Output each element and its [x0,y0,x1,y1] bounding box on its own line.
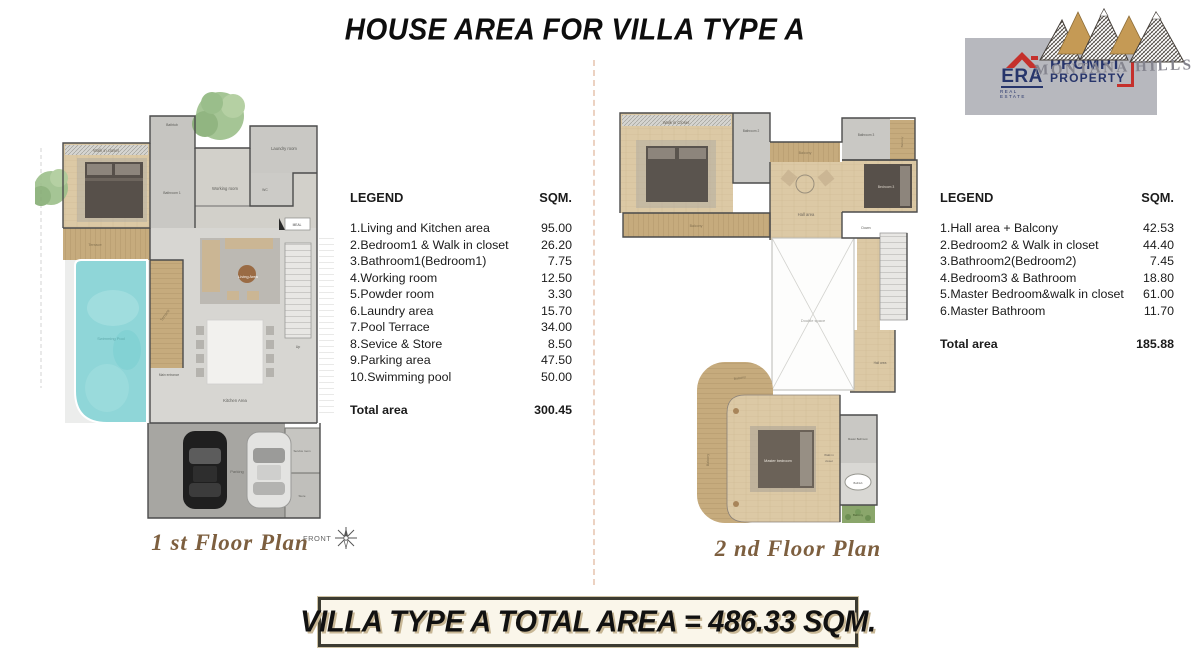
plan1-label-up: Up [296,345,301,349]
plan2-label-walk-in-closet: Walk in Closet [663,120,690,125]
plan1-swimming-pool [75,260,147,423]
legend-row: 7.Pool Terrace34.00 [350,319,572,336]
montana-hills-logo: MONTANA HILLS [1032,4,1200,99]
plan1-dining-table [196,320,274,384]
legend-row: 4.Working room12.50 [350,270,572,287]
plan1-label-swimming-pool: Swimming Pool [97,336,125,341]
second-floor-legend: LEGEND SQM. 1.Hall area + Balcony42.53 2… [940,190,1174,351]
first-floor-legend: LEGEND SQM. 1.Living and Kitchen area95.… [350,190,572,417]
second-floor-plan: Walk in Closet Bathroom 2 Balcony Bathro… [608,98,928,528]
plan1-label-main-entrance: Main entrance [159,373,179,377]
plan2-double-space [772,238,854,390]
legend-row: 3.Bathroom1(Bedroom1)7.75 [350,253,572,270]
plan1-silver-car [247,432,291,508]
legend-row: 5.Powder room3.30 [350,286,572,303]
plan1-living-furniture [200,238,280,304]
legend-row: 8.Sevice & Store8.50 [350,336,572,353]
plan2-label-balcony-top: Balcony [799,151,812,155]
legend1-total-row: Total area 300.45 [350,403,572,417]
plan2-label-balcony-mid: Balcony [690,224,703,228]
plan2-label-walk-in-2: closet [825,459,833,463]
front-indicator: FRONT [303,526,358,550]
plan2-hall-area [770,162,842,240]
plan1-label-living-area: Living Area [238,274,259,279]
plan1-label-store: Store [299,494,306,498]
plan2-label-hall-area2: Hall area [874,361,887,365]
plan1-tree-top [192,92,245,140]
plan2-bathroom3-room [842,118,890,160]
plan2-label-bedroom3: Bedroom 3 [878,185,895,189]
legend-row: 1.Living and Kitchen area95.00 [350,220,572,237]
legend1-header: LEGEND [350,190,403,205]
compass-icon [334,526,358,550]
plan2-label-bathtub: Bathtub [854,481,863,485]
plan1-label-working-room: Working room [212,186,238,191]
trellis-strip [319,238,334,418]
plan1-label-terrace-top: Terrace [88,242,102,247]
plan1-label-kitchen-area: Kitchen Area [223,398,247,403]
legend-row: 3.Bathroom2(Bedroom2)7.45 [940,253,1174,270]
first-floor-plan: Walk in closet Bathtub Bathroom 1 Workin… [35,88,335,548]
legend-row: 6.Laundry area15.70 [350,303,572,320]
plan1-label-service-room: Service room [293,449,311,453]
plan1-label-walk-in-closet: Walk in closet [93,148,120,153]
plan1-wc-room [250,173,293,206]
legend-row: 1.Hall area + Balcony42.53 [940,220,1174,237]
plan2-label-master-bathroom: Master Bathroom [848,437,868,441]
plan2-bathroom2-room [733,113,770,183]
plan2-bed2 [636,140,716,208]
center-divider [593,60,595,585]
plan2-label-walk-in-1: Walk in [824,453,834,457]
plan2-label-down: Down [861,226,870,230]
plan1-label-bathroom1: Bathroom 1 [163,191,181,195]
legend-row: 2.Bedroom2 & Walk in closet44.40 [940,237,1174,254]
mountains-icon [1040,9,1184,62]
plan1-label-bathtub: Bathtub [166,123,178,127]
plan2-label-balcony-right: Balcony [900,136,904,147]
plan2-label-master-bedroom: Master bedroom [764,459,792,463]
plan2-label-bathroom2: Bathroom 2 [743,129,760,133]
page-title: HOUSE AREA FOR VILLA TYPE A [335,13,815,48]
front-label: FRONT [303,534,331,543]
legend-row: 6.Master Bathroom11.70 [940,303,1174,320]
legend2-unit: SQM. [1141,190,1174,205]
plan2-label-double-space: Double space [801,318,826,323]
plan2-stairs [880,233,907,320]
legend-row: 2.Bedroom1 & Walk in closet26.20 [350,237,572,254]
plan1-label-meal: MEAL [293,223,302,227]
plan1-bed [77,158,147,222]
legend-row: 10.Swimming pool50.00 [350,369,572,386]
plan2-label-bathroom3: Bathroom 3 [858,133,875,137]
plan1-terrace-top [63,228,150,260]
legend2-header: LEGEND [940,190,993,205]
plan2-hall-area2-floor [850,330,895,392]
first-floor-caption: 1 st Floor Plan [140,530,320,556]
second-floor-caption: 2 nd Floor Plan [713,536,883,562]
legend1-unit: SQM. [539,190,572,205]
plan1-label-laundry-room: Laundry room [271,146,297,151]
plan1-stairs [285,243,311,338]
plan1-label-parking: Parking [230,469,244,474]
page: HOUSE AREA FOR VILLA TYPE A ERA REAL EST… [0,0,1200,664]
plan2-label-balcony-curve-left: Balcony [706,454,710,466]
legend-row: 5.Master Bedroom&walk in closet61.00 [940,286,1174,303]
plan1-black-car [183,431,227,509]
legend-row: 9.Parking area47.50 [350,352,572,369]
total-area-banner: VILLA TYPE A TOTAL AREA = 486.33 SQM. [318,597,858,647]
plan2-label-hall-area: Hall area [798,212,815,217]
plan2-hall-strip [857,238,880,330]
plan1-label-wc: WC [262,188,268,192]
plan2-label-balcony-small: Balcony [853,513,864,517]
total-area-text: VILLA TYPE A TOTAL AREA = 486.33 SQM. [300,605,876,640]
legend-row: 4.Bedroom3 & Bathroom18.80 [940,270,1174,287]
legend2-total-row: Total area 185.88 [940,337,1174,351]
